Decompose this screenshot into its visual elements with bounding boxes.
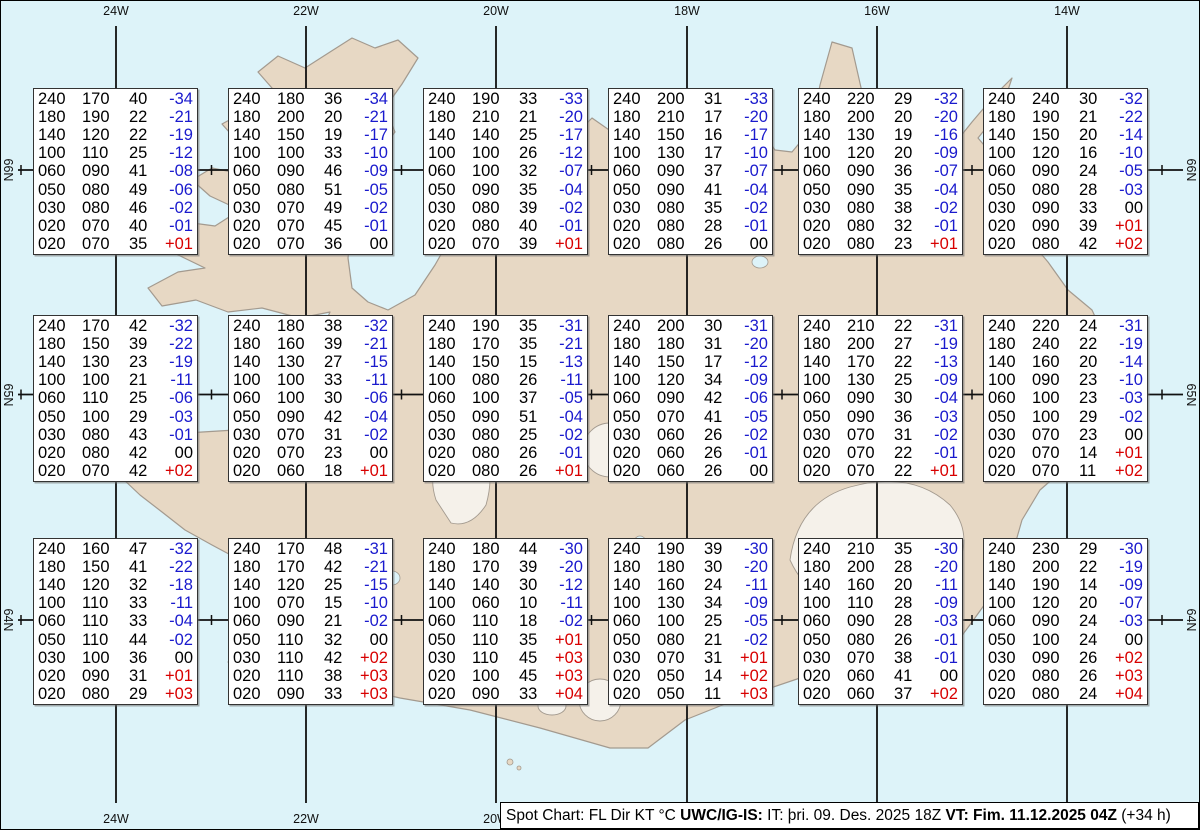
kt-value: 14 <box>1079 444 1115 462</box>
spot-box-r2-c4: 24020030-3118018031-2014015017-121001203… <box>608 315 773 482</box>
spot-box-line: 10009023-10 <box>988 371 1143 389</box>
spot-box-r2-c6: 24022024-3118024022-1914016020-141000902… <box>983 315 1148 482</box>
spot-box-line: 05009036-03 <box>803 408 958 426</box>
spot-box-r3-c3: 24018044-3018017039-2014014030-121000601… <box>423 538 588 705</box>
dir-value: 170 <box>82 317 129 335</box>
kt-value: 44 <box>129 631 165 649</box>
fl-value: 180 <box>988 108 1032 126</box>
fl-value: 140 <box>803 126 847 144</box>
spot-box-line: 18020020-21 <box>233 108 388 126</box>
temp-value: -21 <box>165 108 193 126</box>
fl-value: 100 <box>428 371 472 389</box>
kt-value: 38 <box>894 649 930 667</box>
kt-value: 22 <box>1079 335 1115 353</box>
fl-value: 050 <box>613 408 657 426</box>
dir-value: 110 <box>472 649 519 667</box>
temp-value: -21 <box>360 108 388 126</box>
temp-value: -17 <box>360 126 388 144</box>
dir-value: 090 <box>1032 199 1079 217</box>
longitude-label-bottom-22w: 22W <box>293 812 319 826</box>
kt-value: 26 <box>1079 649 1115 667</box>
spot-box-line: 14016020-11 <box>803 576 958 594</box>
dir-value: 130 <box>847 371 894 389</box>
fl-value: 140 <box>428 126 472 144</box>
dir-value: 140 <box>472 126 519 144</box>
kt-value: 25 <box>129 144 165 162</box>
fl-value: 140 <box>613 576 657 594</box>
fl-value: 140 <box>988 576 1032 594</box>
fl-value: 180 <box>988 335 1032 353</box>
temp-value: -03 <box>930 408 958 426</box>
spot-box-line: 18015041-22 <box>38 558 193 576</box>
temp-value: -10 <box>1115 144 1143 162</box>
temp-value: -09 <box>740 371 768 389</box>
fl-value: 100 <box>803 594 847 612</box>
spot-box-line: 18019021-22 <box>988 108 1143 126</box>
temp-value: -05 <box>1115 162 1143 180</box>
temp-value: 00 <box>1115 631 1143 649</box>
kt-value: 30 <box>704 558 740 576</box>
fl-value: 030 <box>988 199 1032 217</box>
fl-value: 060 <box>803 162 847 180</box>
dir-value: 130 <box>82 353 129 371</box>
temp-value: -22 <box>165 558 193 576</box>
kt-value: 26 <box>519 444 555 462</box>
dir-value: 170 <box>472 335 519 353</box>
kt-value: 30 <box>1079 90 1115 108</box>
kt-value: 33 <box>1079 199 1115 217</box>
dir-value: 180 <box>277 90 324 108</box>
spot-box-r3-c2: 24017048-3118017042-2114012025-151000701… <box>228 538 393 705</box>
kt-value: 37 <box>894 685 930 703</box>
fl-value: 060 <box>428 162 472 180</box>
fl-value: 060 <box>613 389 657 407</box>
temp-value: -34 <box>360 90 388 108</box>
spot-box-line: 03006026-02 <box>613 426 768 444</box>
kt-value: 42 <box>704 389 740 407</box>
fl-value: 020 <box>428 444 472 462</box>
temp-value: -01 <box>165 426 193 444</box>
temp-value: 00 <box>1115 426 1143 444</box>
fl-value: 100 <box>38 371 82 389</box>
fl-value: 050 <box>233 408 277 426</box>
fl-value: 020 <box>233 685 277 703</box>
kt-value: 11 <box>704 685 740 703</box>
kt-value: 30 <box>324 389 360 407</box>
dir-value: 200 <box>657 90 704 108</box>
kt-value: 49 <box>129 181 165 199</box>
temp-value: -31 <box>360 540 388 558</box>
dir-value: 170 <box>472 558 519 576</box>
spot-box-line: 18021021-20 <box>428 108 583 126</box>
kt-value: 34 <box>704 371 740 389</box>
fl-value: 240 <box>988 540 1032 558</box>
spot-box-line: 02006018+01 <box>233 462 388 480</box>
dir-value: 130 <box>657 144 704 162</box>
kt-value: 20 <box>894 108 930 126</box>
fl-value: 140 <box>233 576 277 594</box>
fl-value: 020 <box>803 444 847 462</box>
temp-value: -06 <box>360 389 388 407</box>
fl-value: 020 <box>613 444 657 462</box>
spot-box-line: 02007040-01 <box>38 217 193 235</box>
fl-value: 020 <box>988 235 1032 253</box>
fl-value: 060 <box>803 612 847 630</box>
spot-box-line: 14015015-13 <box>428 353 583 371</box>
dir-value: 080 <box>82 685 129 703</box>
kt-value: 21 <box>704 631 740 649</box>
kt-value: 42 <box>129 444 165 462</box>
temp-value: -05 <box>555 389 583 407</box>
dir-value: 070 <box>277 594 324 612</box>
fl-value: 030 <box>988 426 1032 444</box>
fl-value: 050 <box>988 408 1032 426</box>
dir-value: 080 <box>472 217 519 235</box>
kt-value: 29 <box>1079 540 1115 558</box>
fl-value: 050 <box>988 181 1032 199</box>
spot-box-line: 02007022-01 <box>803 444 958 462</box>
kt-value: 41 <box>704 408 740 426</box>
temp-value: +01 <box>1115 444 1143 462</box>
spot-box-line: 0300903300 <box>988 199 1143 217</box>
dir-value: 070 <box>472 235 519 253</box>
fl-value: 100 <box>803 144 847 162</box>
fl-value: 020 <box>803 462 847 480</box>
kt-value: 45 <box>519 667 555 685</box>
fl-value: 240 <box>988 90 1032 108</box>
kt-value: 28 <box>894 594 930 612</box>
fl-value: 030 <box>428 426 472 444</box>
temp-value: -11 <box>930 576 958 594</box>
spot-box-line: 18017039-20 <box>428 558 583 576</box>
kt-value: 19 <box>894 126 930 144</box>
fl-value: 020 <box>613 667 657 685</box>
temp-value: -02 <box>555 426 583 444</box>
spot-box-line: 02007042+02 <box>38 462 193 480</box>
spot-box-line: 10006010-11 <box>428 594 583 612</box>
spot-box-line: 10011033-11 <box>38 594 193 612</box>
spot-box-r1-c3: 24019033-3318021021-2014014025-171001002… <box>423 88 588 255</box>
temp-value: -20 <box>930 108 958 126</box>
fl-value: 030 <box>38 649 82 667</box>
spot-box-line: 02005011+03 <box>613 685 768 703</box>
dir-value: 100 <box>277 144 324 162</box>
fl-value: 030 <box>38 426 82 444</box>
fl-value: 030 <box>988 649 1032 667</box>
dir-value: 110 <box>82 631 129 649</box>
latitude-label-left-64n: 64N <box>1 609 15 632</box>
dir-value: 200 <box>847 108 894 126</box>
temp-value: -11 <box>740 576 768 594</box>
spot-box-line: 24017042-32 <box>38 317 193 335</box>
temp-value: -19 <box>1115 335 1143 353</box>
latitude-label-left-65n: 65N <box>1 383 15 406</box>
spot-box-line: 14013027-15 <box>233 353 388 371</box>
spot-box-line: 14014025-17 <box>428 126 583 144</box>
fl-value: 060 <box>233 162 277 180</box>
spot-box-line: 24016047-32 <box>38 540 193 558</box>
kt-value: 25 <box>704 612 740 630</box>
kt-value: 42 <box>324 408 360 426</box>
temp-value: 00 <box>740 235 768 253</box>
kt-value: 27 <box>324 353 360 371</box>
fl-value: 060 <box>233 612 277 630</box>
fl-value: 050 <box>613 181 657 199</box>
spot-box-line: 02008028-01 <box>613 217 768 235</box>
fl-value: 020 <box>233 235 277 253</box>
kt-value: 41 <box>704 181 740 199</box>
spot-box-line: 14013023-19 <box>38 353 193 371</box>
dir-value: 190 <box>1032 108 1079 126</box>
spot-box-line: 02007045-01 <box>233 217 388 235</box>
fl-value: 180 <box>613 558 657 576</box>
temp-value: +03 <box>360 685 388 703</box>
kt-value: 34 <box>704 594 740 612</box>
spot-box-line: 06010023-03 <box>988 389 1143 407</box>
spot-box-line: 02008029+03 <box>38 685 193 703</box>
fl-value: 020 <box>988 685 1032 703</box>
fl-value: 100 <box>233 594 277 612</box>
spot-box-line: 02008032-01 <box>803 217 958 235</box>
longitude-label-top-24w: 24W <box>103 4 129 18</box>
fl-value: 020 <box>38 667 82 685</box>
spot-box-line: 06010032-07 <box>428 162 583 180</box>
kt-value: 35 <box>704 199 740 217</box>
temp-value: -02 <box>360 426 388 444</box>
kt-value: 35 <box>519 181 555 199</box>
fl-value: 020 <box>233 444 277 462</box>
kt-value: 25 <box>519 426 555 444</box>
spot-box-line: 18020020-20 <box>803 108 958 126</box>
temp-value: -12 <box>555 144 583 162</box>
temp-value: -07 <box>930 162 958 180</box>
spot-box-line: 24021022-31 <box>803 317 958 335</box>
kt-value: 26 <box>519 462 555 480</box>
fl-value: 050 <box>428 181 472 199</box>
dir-value: 160 <box>277 335 324 353</box>
spot-box-line: 14015020-14 <box>988 126 1143 144</box>
spot-box-line: 10012020-09 <box>803 144 958 162</box>
spot-box-line: 14014030-12 <box>428 576 583 594</box>
temp-value: -02 <box>360 199 388 217</box>
dir-value: 090 <box>1032 649 1079 667</box>
temp-value: -14 <box>1115 126 1143 144</box>
spot-box-line: 02007039+01 <box>428 235 583 253</box>
dir-value: 170 <box>82 90 129 108</box>
temp-value: -12 <box>740 353 768 371</box>
temp-value: -31 <box>930 317 958 335</box>
longitude-label-top-22w: 22W <box>293 4 319 18</box>
fl-value: 180 <box>803 558 847 576</box>
temp-value: -11 <box>165 371 193 389</box>
fl-value: 100 <box>988 594 1032 612</box>
dir-value: 100 <box>472 162 519 180</box>
kt-value: 29 <box>1079 408 1115 426</box>
fl-value: 140 <box>803 353 847 371</box>
dir-value: 110 <box>277 631 324 649</box>
kt-value: 36 <box>129 649 165 667</box>
temp-value: -03 <box>165 408 193 426</box>
temp-value: -10 <box>360 594 388 612</box>
spot-box-line: 18018030-20 <box>613 558 768 576</box>
kt-value: 14 <box>704 667 740 685</box>
spot-box-line: 10013025-09 <box>803 371 958 389</box>
kt-value: 42 <box>129 317 165 335</box>
temp-value: -03 <box>1115 181 1143 199</box>
fl-value: 060 <box>988 389 1032 407</box>
spot-box-line: 10012034-09 <box>613 371 768 389</box>
dir-value: 060 <box>472 594 519 612</box>
temp-value: -03 <box>1115 389 1143 407</box>
dir-value: 210 <box>472 108 519 126</box>
kt-value: 22 <box>894 444 930 462</box>
spot-box-line: 0200604100 <box>803 667 958 685</box>
kt-value: 19 <box>324 126 360 144</box>
dir-value: 070 <box>657 649 704 667</box>
spot-box-line: 03007049-02 <box>233 199 388 217</box>
spot-box-line: 02008023+01 <box>803 235 958 253</box>
dir-value: 090 <box>657 389 704 407</box>
kt-value: 33 <box>324 144 360 162</box>
kt-value: 23 <box>1079 389 1115 407</box>
dir-value: 100 <box>1032 408 1079 426</box>
fl-value: 020 <box>803 235 847 253</box>
dir-value: 080 <box>657 631 704 649</box>
kt-value: 47 <box>129 540 165 558</box>
dir-value: 130 <box>657 594 704 612</box>
temp-value: -02 <box>740 199 768 217</box>
temp-value: 00 <box>360 631 388 649</box>
kt-value: 45 <box>519 649 555 667</box>
spot-box-line: 05010029-03 <box>38 408 193 426</box>
dir-value: 070 <box>1032 426 1079 444</box>
spot-box-line: 05011035+01 <box>428 631 583 649</box>
kt-value: 23 <box>1079 371 1115 389</box>
spot-box-line: 18017042-21 <box>233 558 388 576</box>
kt-value: 23 <box>1079 426 1115 444</box>
spot-box-line: 24019033-33 <box>428 90 583 108</box>
temp-value: -19 <box>165 353 193 371</box>
kt-value: 29 <box>894 90 930 108</box>
spot-box-line: 02007011+02 <box>988 462 1143 480</box>
temp-value: -20 <box>740 108 768 126</box>
fl-value: 100 <box>803 371 847 389</box>
kt-value: 22 <box>894 462 930 480</box>
spot-box-line: 06009036-07 <box>803 162 958 180</box>
temp-value: -07 <box>1115 594 1143 612</box>
temp-value: -10 <box>740 144 768 162</box>
temp-value: -20 <box>740 558 768 576</box>
fl-value: 030 <box>803 199 847 217</box>
kt-value: 35 <box>519 317 555 335</box>
spot-box-line: 05009035-04 <box>428 181 583 199</box>
spot-box-line: 05009042-04 <box>233 408 388 426</box>
fl-value: 240 <box>803 90 847 108</box>
kt-value: 10 <box>519 594 555 612</box>
fl-value: 020 <box>233 667 277 685</box>
spot-box-line: 03008043-01 <box>38 426 193 444</box>
fl-value: 020 <box>613 685 657 703</box>
spot-box-r2-c2: 24018038-3218016039-2114013027-151001003… <box>228 315 393 482</box>
temp-value: -10 <box>1115 371 1143 389</box>
fl-value: 140 <box>428 576 472 594</box>
kt-value: 25 <box>894 371 930 389</box>
temp-value: -06 <box>165 181 193 199</box>
dir-value: 140 <box>472 576 519 594</box>
temp-value: -30 <box>740 540 768 558</box>
fl-value: 060 <box>38 162 82 180</box>
dir-value: 100 <box>472 667 519 685</box>
spot-box-line: 06011033-04 <box>38 612 193 630</box>
kt-value: 30 <box>519 576 555 594</box>
kt-value: 20 <box>894 576 930 594</box>
spot-box-line: 06009037-07 <box>613 162 768 180</box>
dir-value: 100 <box>277 371 324 389</box>
spot-box-line: 02009033+03 <box>233 685 388 703</box>
spot-box-line: 05008049-06 <box>38 181 193 199</box>
temp-value: +04 <box>555 685 583 703</box>
kt-value: 32 <box>324 631 360 649</box>
kt-value: 48 <box>324 540 360 558</box>
dir-value: 090 <box>472 181 519 199</box>
kt-value: 25 <box>324 576 360 594</box>
kt-value: 21 <box>1079 108 1115 126</box>
dir-value: 200 <box>847 335 894 353</box>
temp-value: -11 <box>555 594 583 612</box>
spot-box-line: 06010037-05 <box>428 389 583 407</box>
fl-value: 060 <box>428 389 472 407</box>
kt-value: 28 <box>894 558 930 576</box>
kt-value: 22 <box>894 317 930 335</box>
kt-value: 26 <box>704 426 740 444</box>
fl-value: 020 <box>428 462 472 480</box>
fl-value: 100 <box>613 144 657 162</box>
temp-value: -13 <box>555 353 583 371</box>
spot-box-line: 06009021-02 <box>233 612 388 630</box>
spot-box-line: 18015039-22 <box>38 335 193 353</box>
kt-value: 32 <box>519 162 555 180</box>
spot-box-line: 10008026-11 <box>428 371 583 389</box>
spot-box-line: 02010045+03 <box>428 667 583 685</box>
longitude-label-top-14w: 14W <box>1054 4 1080 18</box>
kt-value: 42 <box>129 462 165 480</box>
temp-value: -01 <box>740 444 768 462</box>
fl-value: 240 <box>233 317 277 335</box>
fl-value: 180 <box>613 335 657 353</box>
temp-value: -31 <box>555 317 583 335</box>
spot-box-line: 18016039-21 <box>233 335 388 353</box>
kt-value: 35 <box>129 235 165 253</box>
temp-value: -30 <box>1115 540 1143 558</box>
temp-value: -20 <box>740 335 768 353</box>
dir-value: 110 <box>847 594 894 612</box>
spot-box-r3-c6: 24023029-3018020022-1914019014-091001202… <box>983 538 1148 705</box>
fl-value: 240 <box>613 540 657 558</box>
dir-value: 110 <box>472 612 519 630</box>
spot-box-line: 06009028-03 <box>803 612 958 630</box>
dir-value: 110 <box>82 594 129 612</box>
kt-value: 14 <box>1079 576 1115 594</box>
spot-box-line: 0200602600 <box>613 462 768 480</box>
kt-value: 30 <box>704 317 740 335</box>
spot-box-line: 24022029-32 <box>803 90 958 108</box>
fl-value: 140 <box>38 353 82 371</box>
kt-value: 32 <box>894 217 930 235</box>
temp-value: -05 <box>360 181 388 199</box>
fl-value: 030 <box>233 426 277 444</box>
dir-value: 100 <box>472 389 519 407</box>
dir-value: 070 <box>277 444 324 462</box>
